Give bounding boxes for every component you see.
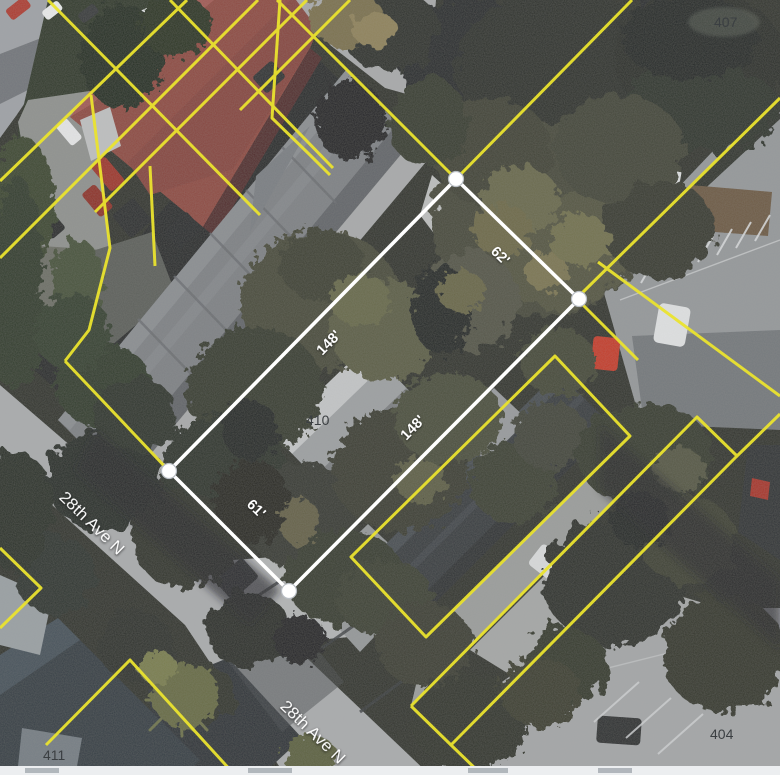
svg-text:407: 407 — [714, 14, 738, 30]
svg-text:411: 411 — [43, 747, 66, 763]
svg-text:410: 410 — [306, 412, 330, 428]
svg-text:404: 404 — [710, 726, 734, 742]
